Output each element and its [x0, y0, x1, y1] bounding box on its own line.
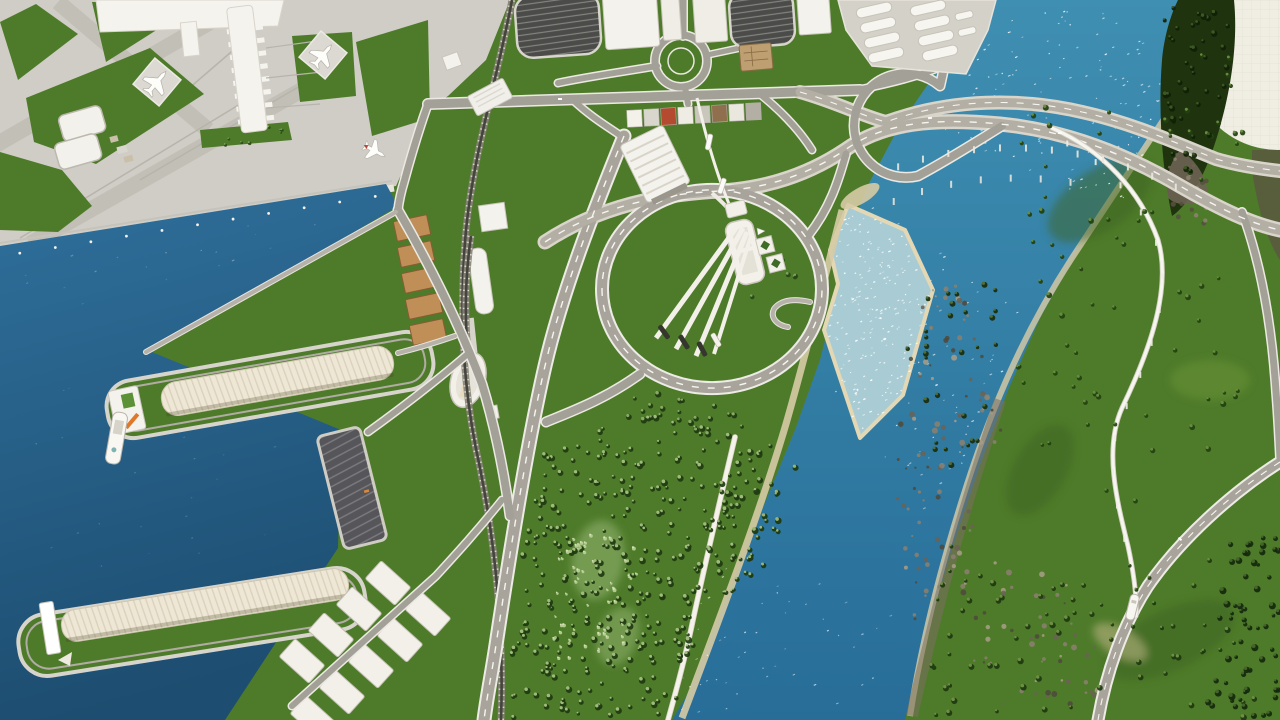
parking-lot-west	[514, 0, 602, 59]
game-viewport[interactable]	[0, 0, 1280, 720]
terminal-annex	[180, 21, 199, 56]
terminal-block-b	[660, 0, 681, 41]
station-building	[478, 202, 507, 231]
red-roof-shop	[661, 108, 677, 126]
terminal-block-d	[797, 0, 832, 35]
game-map[interactable]	[0, 0, 1280, 720]
terminal-block-c	[692, 0, 728, 43]
terminal-block-a	[602, 0, 660, 50]
depot-building	[739, 43, 773, 72]
parking-lot-east	[728, 0, 796, 48]
roundabout-island	[668, 48, 694, 74]
